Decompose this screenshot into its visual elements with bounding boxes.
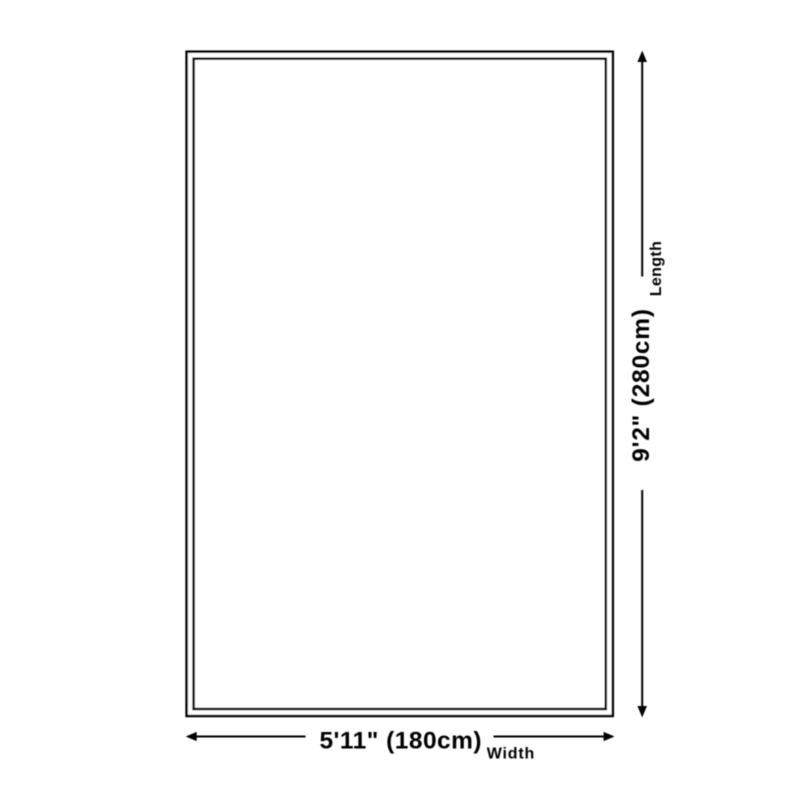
svg-text:9'2" (280cm): 9'2" (280cm) [628, 308, 655, 462]
svg-text:Width: Width [487, 745, 535, 762]
svg-text:Length: Length [648, 241, 665, 296]
svg-text:5'11" (180cm): 5'11" (180cm) [319, 728, 482, 755]
